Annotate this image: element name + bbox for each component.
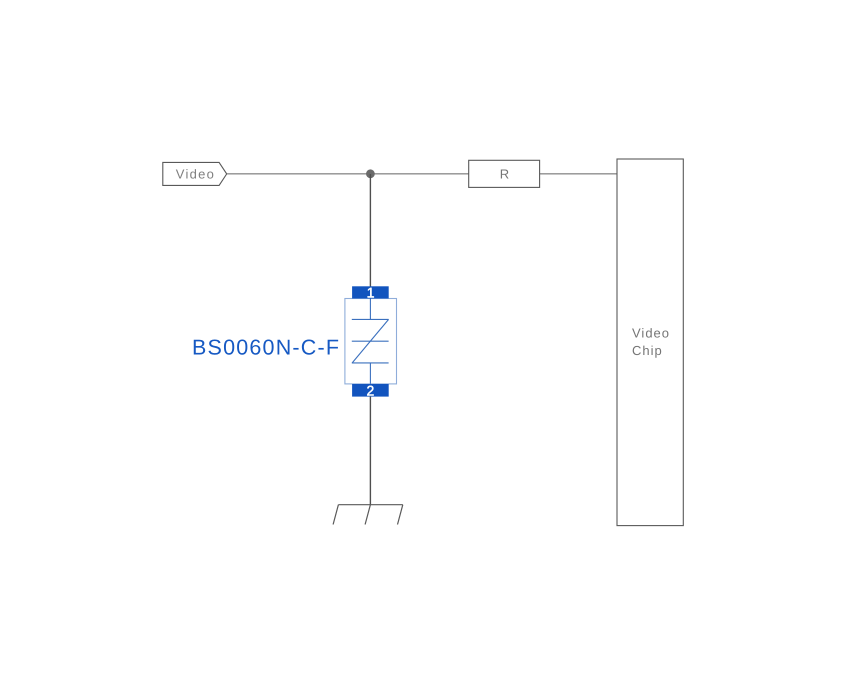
- svg-text:Video: Video: [632, 326, 670, 341]
- svg-text:BS0060N-C-F: BS0060N-C-F: [192, 336, 340, 360]
- svg-text:1: 1: [367, 284, 375, 300]
- svg-text:Video: Video: [176, 166, 215, 181]
- svg-text:2: 2: [367, 382, 375, 398]
- svg-text:R: R: [500, 167, 509, 182]
- svg-text:Chip: Chip: [632, 343, 663, 358]
